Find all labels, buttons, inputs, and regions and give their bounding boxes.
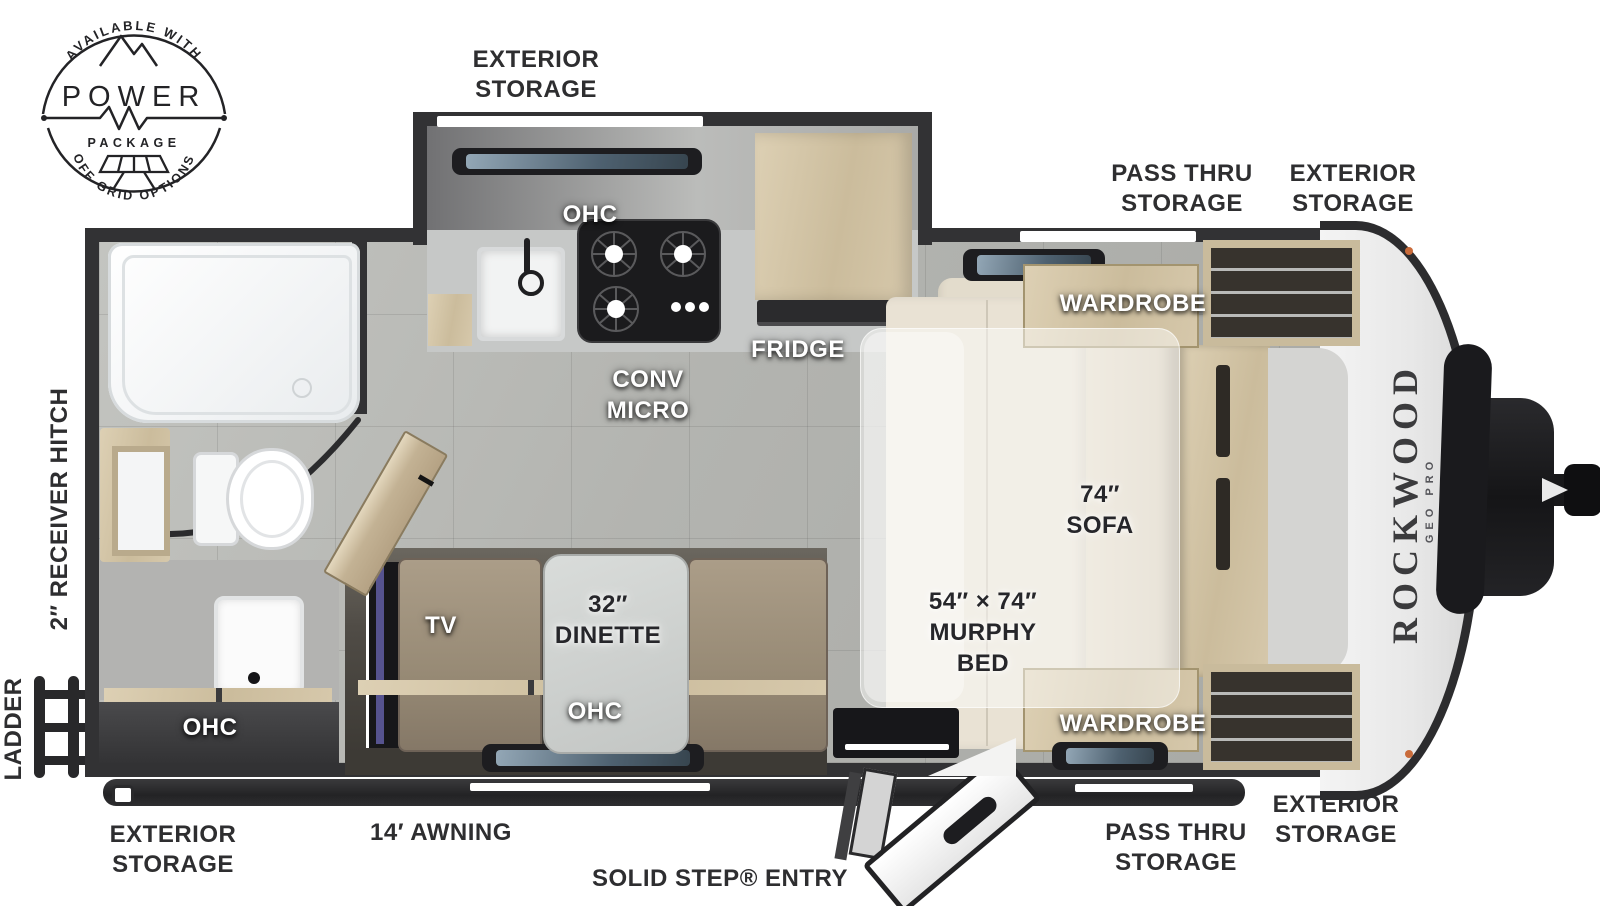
badge-dot-left — [41, 115, 47, 121]
entry-step-box — [833, 708, 959, 758]
stove-cooktop — [576, 218, 722, 344]
bottom-window-right — [1052, 742, 1168, 770]
bed-base-slot-2 — [1216, 478, 1230, 570]
label-exterior-storage-top: EXTERIOR STORAGE — [436, 45, 636, 105]
tv-screen — [376, 566, 384, 744]
solar-panel-icon — [100, 156, 168, 188]
brand-logo: ROCKWOOD — [1384, 353, 1426, 653]
label-fridge: FRIDGE — [728, 334, 868, 365]
counter-wood-ledge — [428, 294, 472, 346]
bathtub-drain — [292, 378, 312, 398]
hitch-coupler — [1564, 464, 1600, 516]
cap-marker-light-top — [1405, 247, 1413, 255]
mountains-icon — [100, 36, 157, 66]
rv-floorplan-diagram: AVAILABLE WITH OFF-GRID OPTIONS POWER PA… — [0, 0, 1600, 906]
label-awning: 14′ AWNING — [341, 818, 541, 848]
awning-highlight-left — [470, 783, 710, 791]
power-package-badge: AVAILABLE WITH OFF-GRID OPTIONS POWER PA… — [36, 4, 232, 204]
brand-series: GEO PRO — [1424, 410, 1440, 590]
badge-package-text: PACKAGE — [87, 136, 180, 150]
cap-decal-window — [1435, 343, 1492, 615]
slideout-window-strip — [437, 116, 703, 127]
top-wall-window-strip — [1020, 231, 1196, 242]
front-deck — [1268, 348, 1348, 674]
badge-arc-top-text: AVAILABLE WITH — [62, 18, 205, 63]
svg-text:AVAILABLE WITH: AVAILABLE WITH — [62, 18, 205, 63]
dinette-bench-right — [688, 558, 828, 752]
dinette-ohc-gap-1 — [528, 680, 534, 695]
kitchen-faucet-stem — [524, 238, 530, 274]
label-ohc-bath: OHC — [160, 712, 260, 743]
kitchen-faucet-icon — [518, 270, 544, 296]
kitchen-sink — [477, 247, 565, 341]
label-sofa: 74″ SOFA — [1040, 479, 1160, 541]
bathtub-inner — [122, 255, 352, 415]
label-murphy-bed: 54″ × 74″ MURPHY BED — [898, 586, 1068, 679]
cap-marker-light-bottom — [1405, 750, 1413, 758]
label-tv: TV — [406, 610, 476, 641]
toilet-seat-ring — [240, 460, 304, 538]
label-exterior-storage-top-right: EXTERIOR STORAGE — [1253, 159, 1453, 219]
label-pass-thru-top: PASS THRU STORAGE — [1082, 159, 1282, 219]
badge-power-text: POWER — [62, 81, 207, 113]
fridge-cabinet — [755, 133, 912, 300]
kitchen-window — [452, 148, 702, 175]
label-solid-step-entry: SOLID STEP® ENTRY — [570, 864, 870, 894]
awning-end-cap — [112, 785, 134, 805]
dinette-bench-left — [398, 558, 542, 752]
bath-faucet-icon — [248, 672, 260, 684]
bath-ledge-gap — [216, 688, 222, 702]
label-dinette: 32″ DINETTE — [538, 589, 678, 651]
label-ladder: LADDER — [0, 654, 29, 804]
label-conv-micro: CONV MICRO — [578, 364, 718, 426]
label-exterior-storage-bottom-left: EXTERIOR STORAGE — [73, 820, 273, 880]
label-receiver-hitch: 2″ RECEIVER HITCH — [45, 359, 75, 659]
bed-base-slot-1 — [1216, 365, 1230, 457]
badge-dot-right — [221, 115, 227, 121]
vanity-mirror — [112, 446, 170, 556]
label-wardrobe-bottom: WARDROBE — [1033, 708, 1233, 739]
label-ohc-kitchen: OHC — [540, 199, 640, 230]
label-wardrobe-top: WARDROBE — [1033, 288, 1233, 319]
label-ohc-dinette: OHC — [545, 696, 645, 727]
awning-highlight-right — [1075, 784, 1193, 792]
entry-step-strip — [845, 744, 949, 750]
